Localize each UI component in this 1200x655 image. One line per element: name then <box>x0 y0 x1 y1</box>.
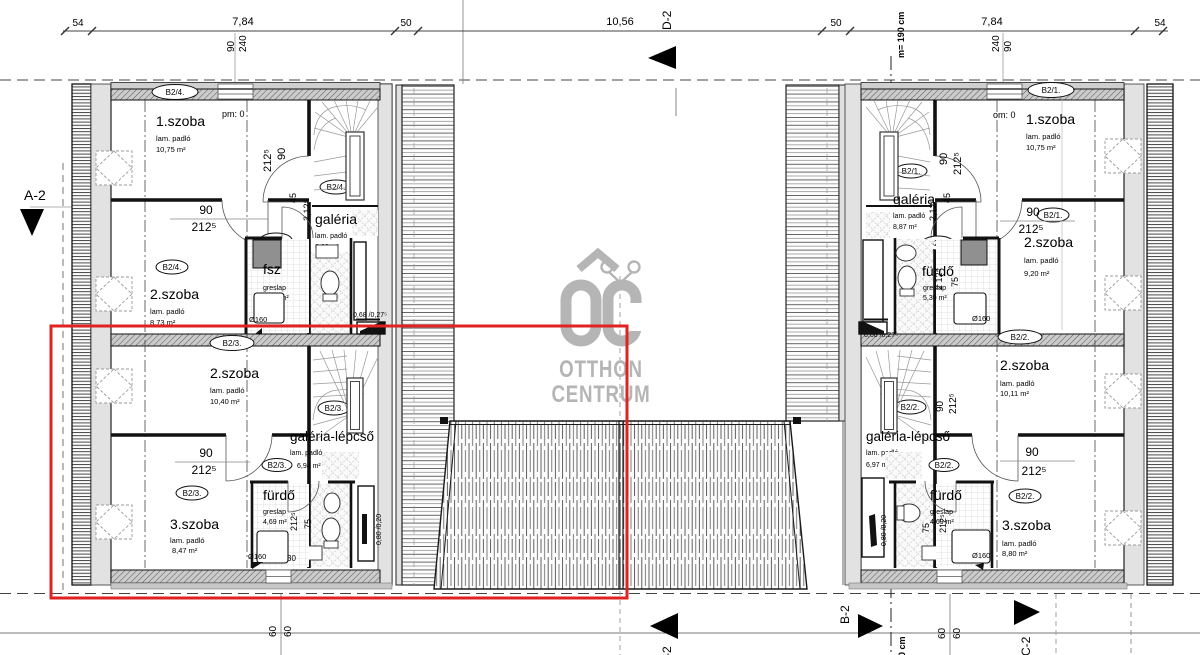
svg-text:212⁵: 212⁵ <box>1019 222 1044 236</box>
svg-text:2,12⁵: 2,12⁵ <box>302 199 312 221</box>
svg-text:90: 90 <box>199 203 213 217</box>
svg-text:B2/3.: B2/3. <box>223 339 242 348</box>
svg-text:10,75 m²: 10,75 m² <box>156 145 186 154</box>
svg-text:10,75 m²: 10,75 m² <box>1026 143 1056 152</box>
svg-text:3.szoba: 3.szoba <box>1002 517 1051 533</box>
svg-text:1.szoba: 1.szoba <box>156 113 205 129</box>
svg-text:75: 75 <box>921 523 931 533</box>
svg-text:8,47 m²: 8,47 m² <box>172 546 198 555</box>
svg-text:om: 0: om: 0 <box>993 110 1016 120</box>
svg-text:6,94 m²: 6,94 m² <box>297 463 321 470</box>
svg-text:B2/1.: B2/1. <box>1044 211 1063 220</box>
svg-text:2.szoba: 2.szoba <box>1000 357 1049 373</box>
svg-text:90: 90 <box>935 400 946 412</box>
svg-text:3.szoba: 3.szoba <box>170 516 219 532</box>
svg-text:8,87 m²: 8,87 m² <box>893 224 917 231</box>
svg-text:galéria-lépcső: galéria-lépcső <box>866 429 950 444</box>
svg-text:2 12⁵: 2 12⁵ <box>934 268 944 290</box>
svg-text:7,84: 7,84 <box>232 16 253 28</box>
svg-text:m= 190 cm: m= 190 cm <box>896 12 906 58</box>
svg-text:B2/1.: B2/1. <box>1042 86 1061 95</box>
svg-text:lam. padló: lam. padló <box>150 307 185 316</box>
svg-text:0,80 /0,20: 0,80 /0,20 <box>881 515 888 546</box>
svg-text:-2: -2 <box>660 646 674 655</box>
svg-text:50: 50 <box>830 18 842 29</box>
svg-text:0,68 /0,27⁵: 0,68 /0,27⁵ <box>353 312 387 319</box>
svg-text:Ø160: Ø160 <box>972 551 990 560</box>
svg-text:lam. padló: lam. padló <box>210 386 245 395</box>
svg-text:B2/3.: B2/3. <box>268 461 287 470</box>
svg-text:B2/3.: B2/3. <box>325 404 344 413</box>
svg-text:0,80 /0,20: 0,80 /0,20 <box>376 514 383 545</box>
svg-text:60: 60 <box>283 625 294 637</box>
svg-text:50: 50 <box>400 18 412 29</box>
svg-text:90: 90 <box>1025 445 1039 459</box>
svg-text:90: 90 <box>1026 205 1040 219</box>
svg-text:60: 60 <box>937 627 948 639</box>
svg-text:5,39 m²: 5,39 m² <box>923 295 947 302</box>
svg-text:C-2: C-2 <box>1019 636 1033 655</box>
svg-text:75: 75 <box>950 277 960 287</box>
svg-text:2.szoba: 2.szoba <box>210 365 259 381</box>
svg-text:10,56: 10,56 <box>606 16 634 28</box>
svg-text:45: 45 <box>288 193 298 203</box>
svg-text:75: 75 <box>303 519 313 529</box>
svg-text:212⁵: 212⁵ <box>192 220 217 234</box>
svg-text:2.szoba: 2.szoba <box>1024 234 1073 250</box>
svg-text:212⁵: 212⁵ <box>938 514 948 533</box>
svg-text:fürdő: fürdő <box>930 487 962 503</box>
svg-text:212⁵: 212⁵ <box>948 393 959 414</box>
svg-text:212⁵: 212⁵ <box>952 152 964 175</box>
svg-text:45: 45 <box>942 193 952 203</box>
svg-text:240: 240 <box>991 35 1002 52</box>
svg-text:lam. padló: lam. padló <box>290 450 322 457</box>
svg-text:10,40 m²: 10,40 m² <box>210 397 240 406</box>
svg-text:lam. padló: lam. padló <box>893 213 925 220</box>
svg-text:90: 90 <box>276 148 288 160</box>
svg-text:60: 60 <box>952 627 963 639</box>
svg-text:7,84: 7,84 <box>981 16 1002 28</box>
svg-text:galéria: galéria <box>893 191 935 207</box>
svg-text:Ø160: Ø160 <box>249 315 267 324</box>
svg-text:90: 90 <box>199 446 213 460</box>
svg-text:lam. padló: lam. padló <box>156 134 191 143</box>
svg-text:fsz: fsz <box>263 261 281 277</box>
svg-text:Ø160: Ø160 <box>248 552 266 561</box>
svg-text:lam. padló: lam. padló <box>1000 379 1035 388</box>
svg-text:212⁵: 212⁵ <box>1022 464 1047 478</box>
svg-text:B2/2.: B2/2. <box>901 403 920 412</box>
svg-text:galéria-lépcső: galéria-lépcső <box>290 429 374 444</box>
svg-text:240: 240 <box>238 35 249 52</box>
svg-text:0 cm: 0 cm <box>897 636 907 655</box>
svg-text:1.szoba: 1.szoba <box>1026 111 1075 127</box>
svg-text:212⁵: 212⁵ <box>262 149 274 172</box>
svg-text:galéria: galéria <box>315 211 357 227</box>
svg-text:B2/3.: B2/3. <box>183 489 202 498</box>
svg-text:B2/2.: B2/2. <box>1011 333 1030 342</box>
svg-text:pm: 0: pm: 0 <box>222 109 245 119</box>
svg-text:10,11 m²: 10,11 m² <box>1000 389 1030 398</box>
svg-text:9,20 m²: 9,20 m² <box>1024 269 1050 278</box>
svg-text:54: 54 <box>72 18 84 29</box>
svg-text:90: 90 <box>938 153 950 165</box>
svg-text:60: 60 <box>268 625 279 637</box>
svg-text:CENTRUM: CENTRUM <box>551 381 650 408</box>
svg-text:B2/4.: B2/4. <box>163 263 182 272</box>
svg-text:212⁵: 212⁵ <box>192 463 217 477</box>
svg-text:A-2: A-2 <box>24 187 46 203</box>
svg-text:lam. padló: lam. padló <box>1002 539 1037 548</box>
svg-text:lam. padló: lam. padló <box>1024 256 1059 265</box>
svg-text:lam. padló: lam. padló <box>1026 132 1061 141</box>
svg-text:B2/4.: B2/4. <box>327 183 346 192</box>
svg-text:4,69 m²: 4,69 m² <box>263 519 287 526</box>
svg-text:B2/2.: B2/2. <box>1016 492 1035 501</box>
svg-text:54: 54 <box>1154 18 1166 29</box>
svg-text:90: 90 <box>1003 40 1014 52</box>
svg-text:fürdő: fürdő <box>263 487 295 503</box>
svg-text:lam. padló: lam. padló <box>170 536 205 545</box>
svg-text:B-2: B-2 <box>838 605 852 624</box>
svg-text:lam. padló: lam. padló <box>315 233 347 240</box>
svg-text:D-2: D-2 <box>660 10 674 30</box>
svg-text:90: 90 <box>226 40 237 52</box>
svg-text:2.szoba: 2.szoba <box>150 286 199 302</box>
svg-text:OTTHON: OTTHON <box>559 356 643 383</box>
svg-text:Ø160: Ø160 <box>972 314 990 323</box>
svg-text:greslap: greslap <box>263 285 286 292</box>
svg-text:212⁵: 212⁵ <box>289 512 299 531</box>
svg-text:30: 30 <box>287 554 296 563</box>
svg-text:B2/2.: B2/2. <box>935 461 954 470</box>
svg-text:greslap: greslap <box>263 509 286 516</box>
svg-text:8,80 m²: 8,80 m² <box>1002 549 1028 558</box>
svg-text:B2/4.: B2/4. <box>166 88 185 97</box>
